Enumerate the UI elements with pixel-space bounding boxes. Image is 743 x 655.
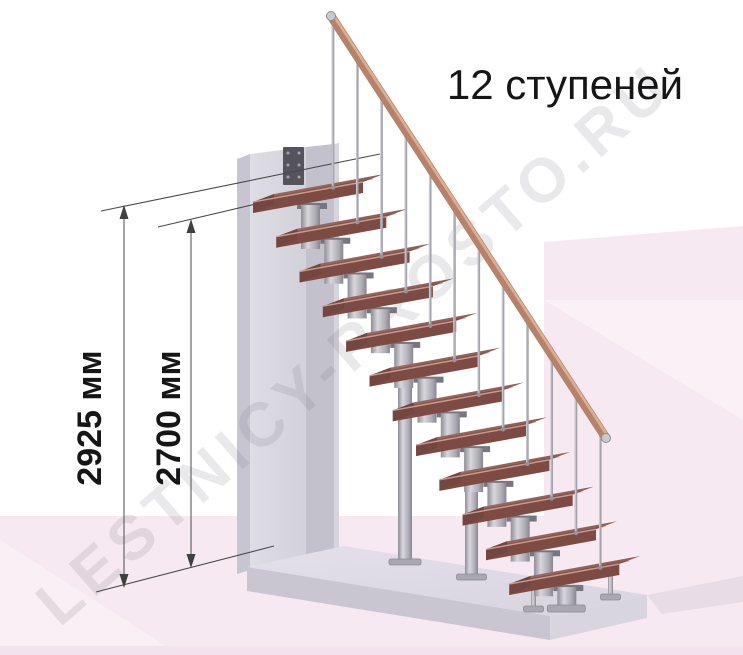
mounting-bracket bbox=[283, 147, 304, 185]
baluster-foot bbox=[379, 254, 383, 258]
baluster-foot bbox=[574, 531, 578, 535]
bracket-hole bbox=[287, 164, 290, 167]
support-rod-right-base-plate bbox=[601, 594, 621, 600]
baluster-foot bbox=[477, 393, 481, 397]
page-title: 12 ступеней bbox=[447, 61, 683, 108]
baluster-foot bbox=[355, 220, 359, 224]
wall-left-face bbox=[237, 154, 250, 574]
dimension-label-2700: 2700 мм bbox=[150, 350, 188, 485]
baluster-foot bbox=[525, 462, 529, 466]
baluster-foot bbox=[598, 565, 602, 569]
baluster-foot bbox=[550, 496, 554, 500]
handrail-top-cap bbox=[327, 12, 336, 21]
bracket-hole bbox=[298, 152, 301, 155]
support-post bbox=[465, 490, 478, 578]
baluster-foot bbox=[331, 185, 335, 189]
stair-scene: LESTNICY-PROSTO.RU 2925 мм 2700 мм 12 ст… bbox=[0, 0, 743, 655]
support-post-base-plate bbox=[389, 559, 421, 565]
support-rod-left-base-plate bbox=[524, 606, 544, 612]
background-bottom-strip bbox=[0, 646, 743, 655]
bracket-hole bbox=[298, 176, 301, 179]
dimension-label-2925: 2925 мм bbox=[71, 350, 109, 485]
baluster-foot bbox=[428, 324, 432, 328]
baluster-foot bbox=[404, 289, 408, 293]
mounting-bracket-plate bbox=[283, 147, 304, 185]
handrail-bottom-cap bbox=[602, 434, 611, 443]
support-post-base-plate bbox=[457, 574, 487, 580]
module-base-plate bbox=[547, 605, 585, 612]
baluster-foot bbox=[501, 427, 505, 431]
bracket-hole bbox=[287, 152, 290, 155]
bracket-hole bbox=[287, 176, 290, 179]
stair-diagram-canvas: LESTNICY-PROSTO.RU 2925 мм 2700 мм 12 ст… bbox=[0, 0, 743, 655]
bracket-hole bbox=[298, 164, 301, 167]
baluster-foot bbox=[452, 358, 456, 362]
